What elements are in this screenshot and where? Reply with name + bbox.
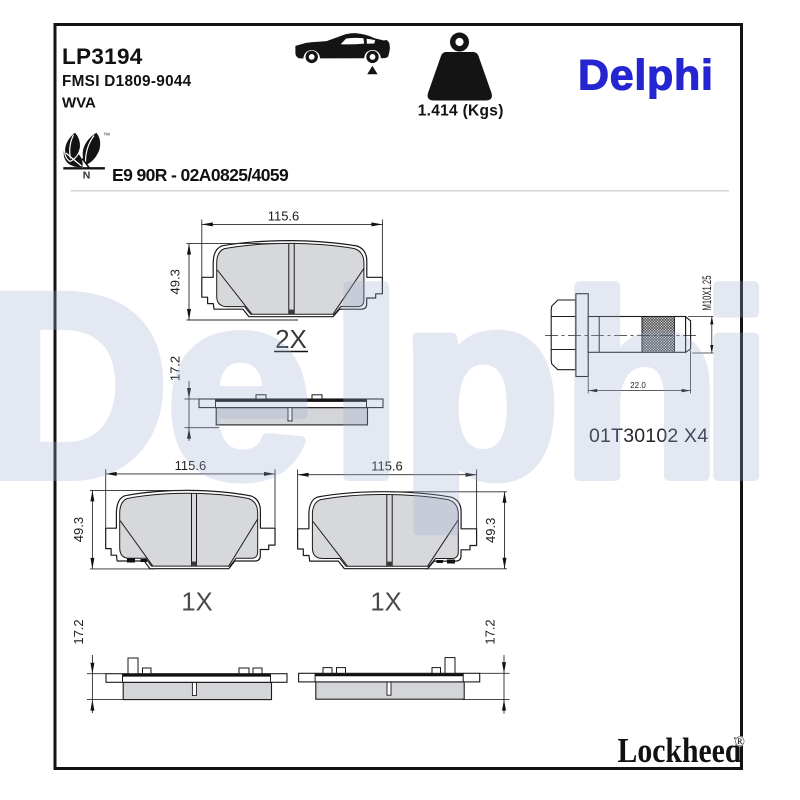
svg-text:FMSI D1809-9044: FMSI D1809-9044	[62, 73, 192, 90]
svg-text:115.6: 115.6	[268, 208, 300, 223]
svg-text:Delphi: Delphi	[0, 239, 773, 533]
svg-text:17.2: 17.2	[71, 619, 86, 644]
svg-text:Delphi: Delphi	[578, 52, 714, 100]
svg-text:1X: 1X	[181, 589, 212, 617]
svg-text:17.2: 17.2	[482, 619, 497, 644]
svg-text:1.414 (Kgs): 1.414 (Kgs)	[418, 103, 504, 120]
svg-text:Lockheed: Lockheed	[618, 732, 742, 771]
svg-text:N: N	[83, 170, 91, 182]
svg-text:®: ®	[735, 734, 745, 749]
svg-text:LP3194: LP3194	[62, 44, 143, 69]
svg-text:WVA: WVA	[62, 95, 96, 112]
svg-text:1X: 1X	[370, 589, 401, 617]
svg-text:™: ™	[103, 133, 110, 140]
svg-text:E9 90R - 02A0825/4059: E9 90R - 02A0825/4059	[112, 165, 289, 185]
